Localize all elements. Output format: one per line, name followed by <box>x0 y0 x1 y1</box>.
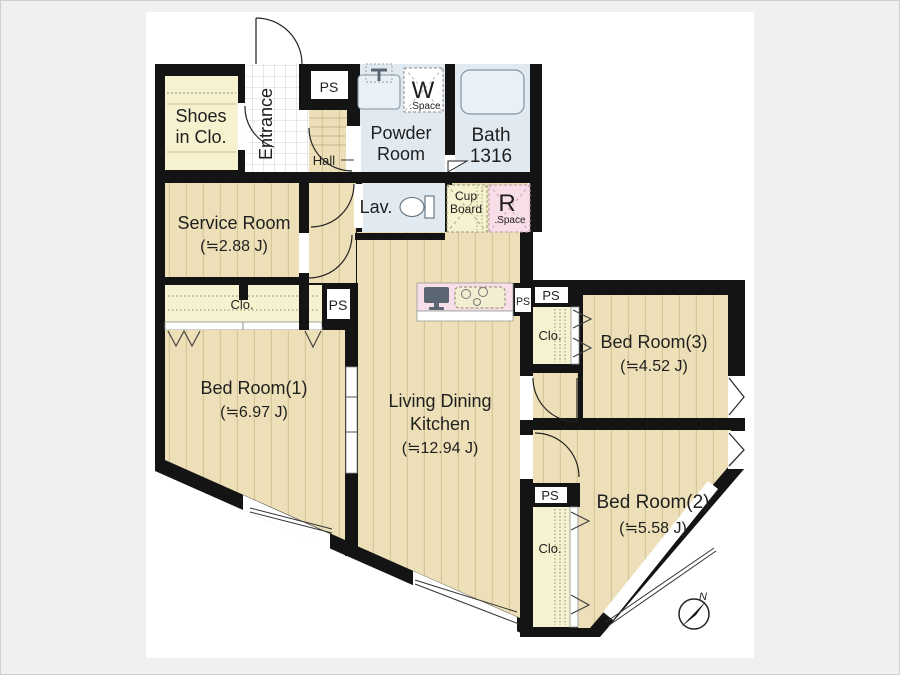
floor-plan: N Shoes in Clo. Entrance PS Powder Room … <box>0 0 900 675</box>
toilet-icon <box>400 196 434 218</box>
refrigerator-space-initial: R <box>498 190 515 217</box>
closet-label-br2: Clo. <box>538 541 561 556</box>
ps-label-kitchen: PS <box>516 296 530 308</box>
ldk-area: (≒12.94 J) <box>402 440 479 457</box>
shoes-closet-label-2: in Clo. <box>175 127 226 147</box>
closet-label-br1: Clo. <box>230 297 253 312</box>
shoes-closet-label-1: Shoes <box>175 106 226 126</box>
room-bedroom3 <box>583 295 728 418</box>
hall-label: Hall <box>313 153 336 168</box>
entrance-label: Entrance <box>256 88 276 160</box>
wall-band <box>155 172 542 183</box>
sliding-door-br1-ldk <box>346 367 357 473</box>
bedroom1-area: (≒6.97 J) <box>220 404 288 421</box>
ps-label-br3: PS <box>542 288 560 303</box>
ldk-label-2: Kitchen <box>410 414 470 434</box>
service-room-label: Service Room <box>177 213 290 233</box>
compass-n-label: N <box>699 591 707 603</box>
doorway-service <box>299 233 309 273</box>
window-br2-right <box>728 431 750 469</box>
bedroom2-label: Bed Room(2) <box>597 492 710 513</box>
bedroom3-area: (≒4.52 J) <box>620 358 688 375</box>
window-br3-right <box>728 376 750 418</box>
bath-label-1: Bath <box>471 125 510 146</box>
bath-label-2: 1316 <box>470 146 512 167</box>
doorway-br2 <box>520 435 533 479</box>
wall-br3-br2 <box>520 418 745 430</box>
ps-label-br2: PS <box>541 488 559 503</box>
ps-label-top: PS <box>320 79 339 95</box>
cupboard-label-2: Board <box>450 202 482 216</box>
washer-space-caption: .Space <box>409 101 441 112</box>
lav-label: Lav. <box>360 197 393 217</box>
ps-label-mid: PS <box>329 297 348 313</box>
bedroom2-closet <box>533 507 578 627</box>
kitchen-counter <box>417 283 513 321</box>
ldk-label-1: Living Dining <box>388 391 491 411</box>
bedroom1-label: Bed Room(1) <box>200 378 307 398</box>
washer-space-initial: W <box>412 77 435 104</box>
bedroom2-area: (≒5.58 J) <box>619 520 687 537</box>
doorway-br3 <box>520 376 533 420</box>
powder-label-2: Room <box>377 144 425 164</box>
stove-icon <box>455 287 505 308</box>
bedroom3-entry <box>533 373 578 420</box>
powder-label-1: Powder <box>370 123 431 143</box>
floor-plan-page: N Shoes in Clo. Entrance PS Powder Room … <box>0 0 900 675</box>
bedroom3-label: Bed Room(3) <box>600 332 707 352</box>
wall-lav-bottom <box>355 233 445 240</box>
service-room-area: (≒2.88 J) <box>200 238 268 255</box>
wall-br3clo-bottom <box>528 364 580 373</box>
closet-label-br3: Clo. <box>538 328 561 343</box>
cupboard-label-1: Cup <box>455 189 477 203</box>
doorway-powder <box>346 126 361 172</box>
refrigerator-space-caption: .Space <box>494 215 526 226</box>
bathtub-icon <box>461 70 524 114</box>
